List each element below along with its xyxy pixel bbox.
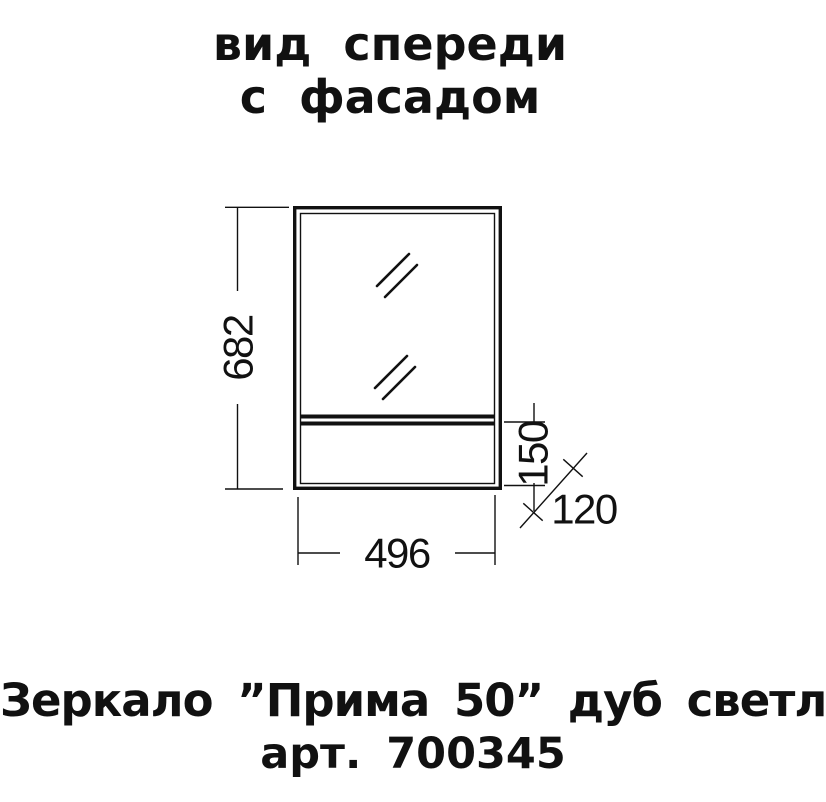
drawing-page: вид спереди с фасадом 682 [0,0,826,802]
product-caption: Зеркало ”Прима 50” дуб светлый арт. 7003… [0,674,826,780]
shelf-lines [301,417,494,424]
dimension-height: 682 [215,207,289,489]
dimension-depth-label: 120 [551,486,617,533]
hatch-stroke [383,367,415,399]
caption-article-number: арт. 700345 [0,728,826,780]
mirror-frame-outer [295,208,501,489]
hatch-stroke [385,265,417,297]
caption-product-name: Зеркало ”Прима 50” дуб светлый [0,674,826,728]
mirror-frame-inner [301,214,495,484]
dimension-width: 496 [298,495,495,577]
hatch-stroke [375,356,407,388]
dimension-height-label: 682 [215,315,262,381]
hatch-stroke [377,254,409,286]
dimension-shelf-height-label: 150 [510,421,557,487]
dimension-width-label: 496 [364,530,430,577]
mirror-frame [295,208,501,489]
mirror-reflection-hatch [375,254,417,399]
